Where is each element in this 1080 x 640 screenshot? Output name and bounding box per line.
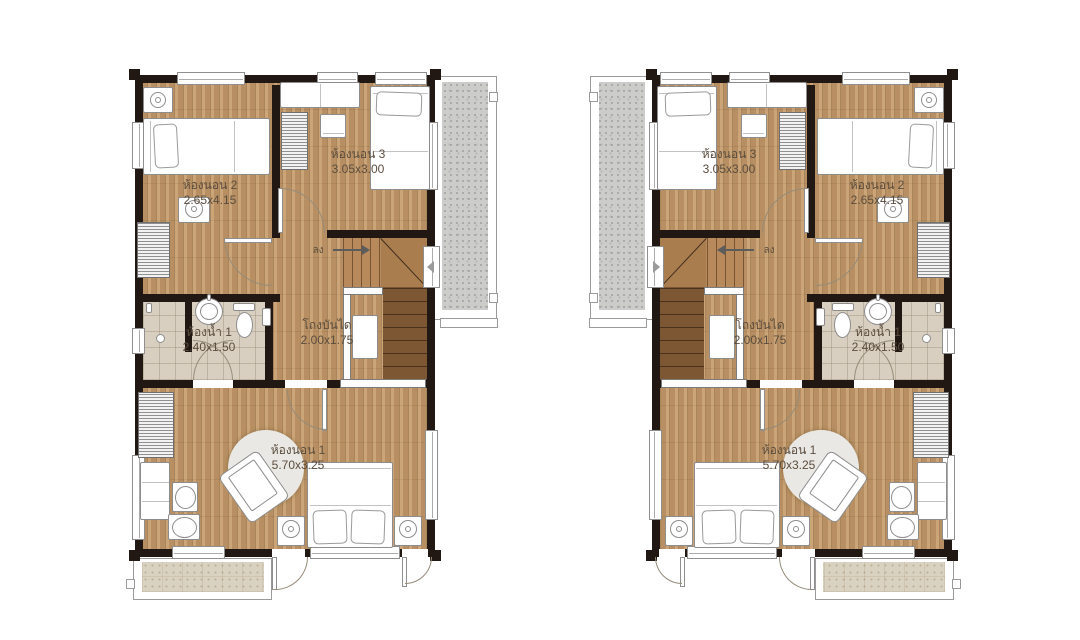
- floor-plans-canvas: ห้องนอน 3 3.05x3.00 ห้องนอน 2 2.65x4.15 …: [0, 0, 1080, 640]
- room-name: ห้องนอน 2: [829, 178, 925, 193]
- plan-labels: ห้องนอน 3 3.05x3.00 ห้องนอน 2 2.65x4.15 …: [118, 58, 510, 618]
- room-label-bathroom1: ห้องน้ำ 1 2.40x1.50: [161, 325, 257, 354]
- room-dims: 5.70x3.25: [741, 458, 837, 473]
- room-name: ห้องน้ำ 1: [161, 325, 257, 340]
- room-dims: 2.40x1.50: [161, 340, 257, 355]
- room-dims: 3.05x3.00: [310, 162, 406, 177]
- room-name: ห้องนอน 1: [250, 443, 346, 458]
- room-label-bathroom1: ห้องน้ำ 1 2.40x1.50: [830, 325, 926, 354]
- plan-labels: ห้องนอน 3 3.05x3.00 ห้องนอน 2 2.65x4.15 …: [577, 58, 969, 618]
- room-label-bedroom1: ห้องนอน 1 5.70x3.25: [741, 443, 837, 472]
- room-dims: 2.65x4.15: [829, 193, 925, 208]
- room-name: ห้องนอน 1: [741, 443, 837, 458]
- room-name: ห้องน้ำ 1: [830, 325, 926, 340]
- room-label-bedroom2: ห้องนอน 2 2.65x4.15: [829, 178, 925, 207]
- room-name: ห้องนอน 2: [162, 178, 258, 193]
- room-dims: 2.40x1.50: [830, 340, 926, 355]
- floor-plan-left: ห้องนอน 3 3.05x3.00 ห้องนอน 2 2.65x4.15 …: [118, 58, 510, 618]
- room-dims: 2.00x1.75: [279, 333, 375, 348]
- stair-direction-label: ลง: [757, 243, 781, 258]
- room-label-bedroom1: ห้องนอน 1 5.70x3.25: [250, 443, 346, 472]
- room-label-stair-hall: โถงบันได 2.00x1.75: [712, 318, 808, 347]
- room-name: ห้องนอน 3: [681, 147, 777, 162]
- room-label-bedroom3: ห้องนอน 3 3.05x3.00: [310, 147, 406, 176]
- stair-direction-label: ลง: [306, 243, 330, 258]
- room-label-stair-hall: โถงบันได 2.00x1.75: [279, 318, 375, 347]
- room-label-bedroom2: ห้องนอน 2 2.65x4.15: [162, 178, 258, 207]
- room-name: โถงบันได: [279, 318, 375, 333]
- room-name: ห้องนอน 3: [310, 147, 406, 162]
- room-dims: 2.00x1.75: [712, 333, 808, 348]
- room-label-bedroom3: ห้องนอน 3 3.05x3.00: [681, 147, 777, 176]
- floor-plan-right: ห้องนอน 3 3.05x3.00 ห้องนอน 2 2.65x4.15 …: [577, 58, 969, 618]
- room-dims: 5.70x3.25: [250, 458, 346, 473]
- room-name: โถงบันได: [712, 318, 808, 333]
- room-dims: 3.05x3.00: [681, 162, 777, 177]
- room-dims: 2.65x4.15: [162, 193, 258, 208]
